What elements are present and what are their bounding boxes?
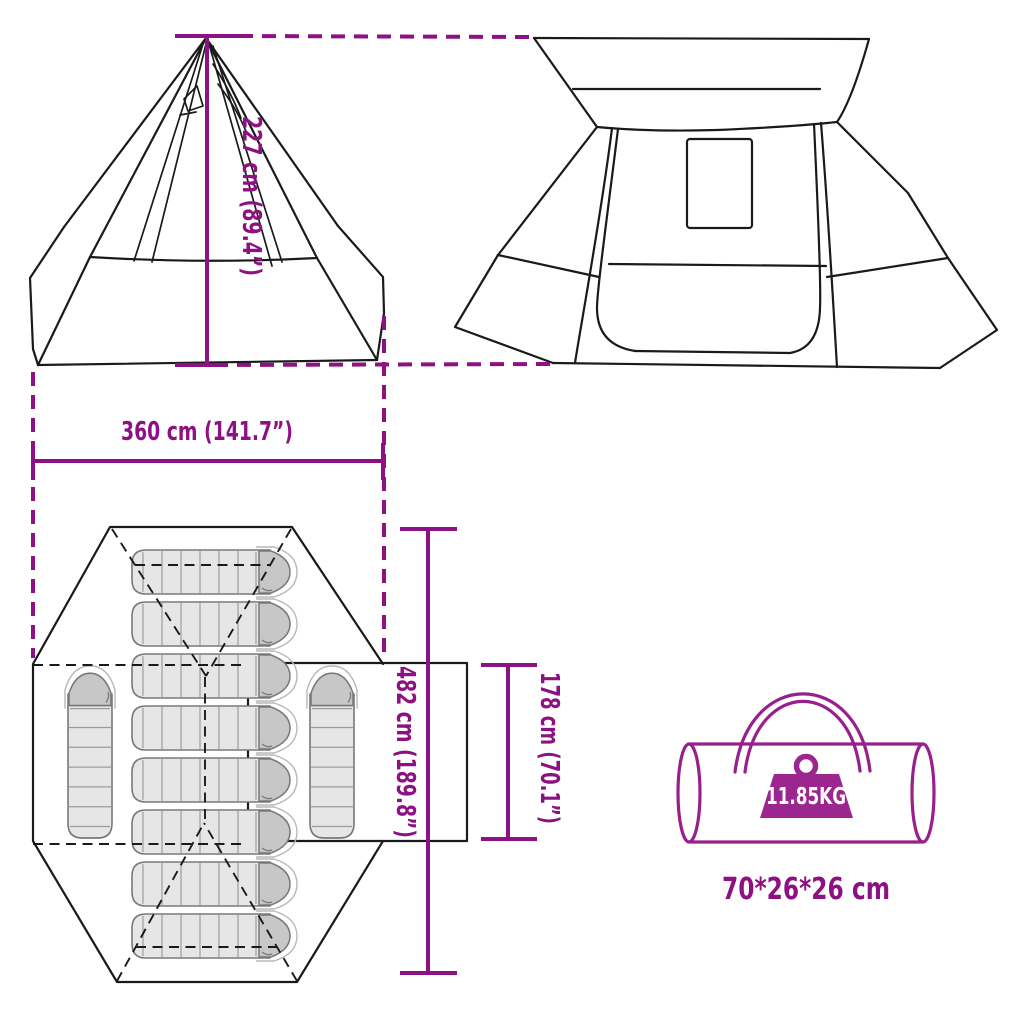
carry-bag-right-cap: [912, 744, 934, 842]
side-left-wall-edge: [498, 127, 597, 255]
side-door-right-outer: [821, 123, 837, 367]
sleeping-bag: [132, 651, 297, 701]
height-dimension-label: 227 cm (89.4”): [236, 116, 266, 276]
side-left-skirt: [455, 255, 553, 363]
dimension-annotations: 227 cm (89.4”) 360 cm (141.7”) 482 cm (1…: [33, 36, 564, 973]
side-right-wall-edge: [837, 122, 948, 258]
tent-dimension-diagram: 11.85KG 70*26*26 cm 227 cm (89.4”) 360 c…: [0, 0, 1024, 1024]
weight-label: 11.85KG: [766, 784, 846, 810]
side-door-left-inner: [597, 129, 635, 351]
sleeping-bag: [132, 703, 297, 753]
side-ground-line: [553, 363, 940, 368]
weight-icon-ring: [797, 757, 816, 776]
sleeping-bag: [132, 859, 297, 909]
carry-bag: 11.85KG 70*26*26 cm: [678, 694, 934, 907]
side-roof-left-edge: [534, 38, 597, 127]
diagram-svg: 11.85KG 70*26*26 cm 227 cm (89.4”) 360 c…: [0, 0, 1024, 1024]
side-door-bottom: [635, 351, 790, 353]
tipi-vent-flap: [184, 86, 203, 111]
side-right-wall-seam: [827, 258, 948, 277]
width-dimension-label: 360 cm (141.7”): [121, 417, 293, 447]
tent-side-view: [455, 38, 997, 368]
carry-bag-left-cap: [678, 744, 700, 842]
side-right-skirt: [940, 258, 997, 368]
tipi-door-edge-left-inner: [152, 44, 206, 262]
side-roof-top-edge: [534, 38, 869, 39]
side-door-window: [687, 139, 752, 228]
door-dimension-label: 178 cm (70.1”): [534, 672, 564, 824]
sleeping-bag: [132, 755, 297, 805]
side-roof-right-edge: [837, 39, 869, 122]
tipi-right-corner-seam: [317, 258, 377, 360]
sleeping-bag-vertical-right: [307, 666, 357, 838]
length-dimension-label: 482 cm (189.8”): [390, 666, 420, 838]
weight-icon: 11.85KG: [760, 757, 853, 819]
side-eave-line: [597, 122, 837, 131]
tipi-horizontal-seam: [90, 257, 317, 261]
package-size-label: 70*26*26 cm: [722, 872, 890, 907]
sleeping-bag: [132, 547, 297, 597]
side-door-right-inner: [790, 124, 820, 353]
sleeping-bag: [132, 911, 297, 961]
side-left-wall-seam: [498, 255, 599, 277]
side-door-left-outer: [575, 128, 612, 363]
sleeping-bag: [132, 807, 297, 857]
tipi-right-panel: [338, 226, 384, 360]
sleeping-bag: [132, 599, 297, 649]
sleeping-bags: [65, 547, 357, 961]
tipi-right-outer-edge: [206, 38, 338, 226]
apex-extension-dashed: [239, 36, 533, 37]
sleeping-bag-vertical-left: [65, 666, 115, 838]
side-door-seam: [609, 264, 826, 266]
tipi-left-corner-seam: [38, 257, 90, 365]
tipi-left-face-edge: [90, 40, 205, 257]
